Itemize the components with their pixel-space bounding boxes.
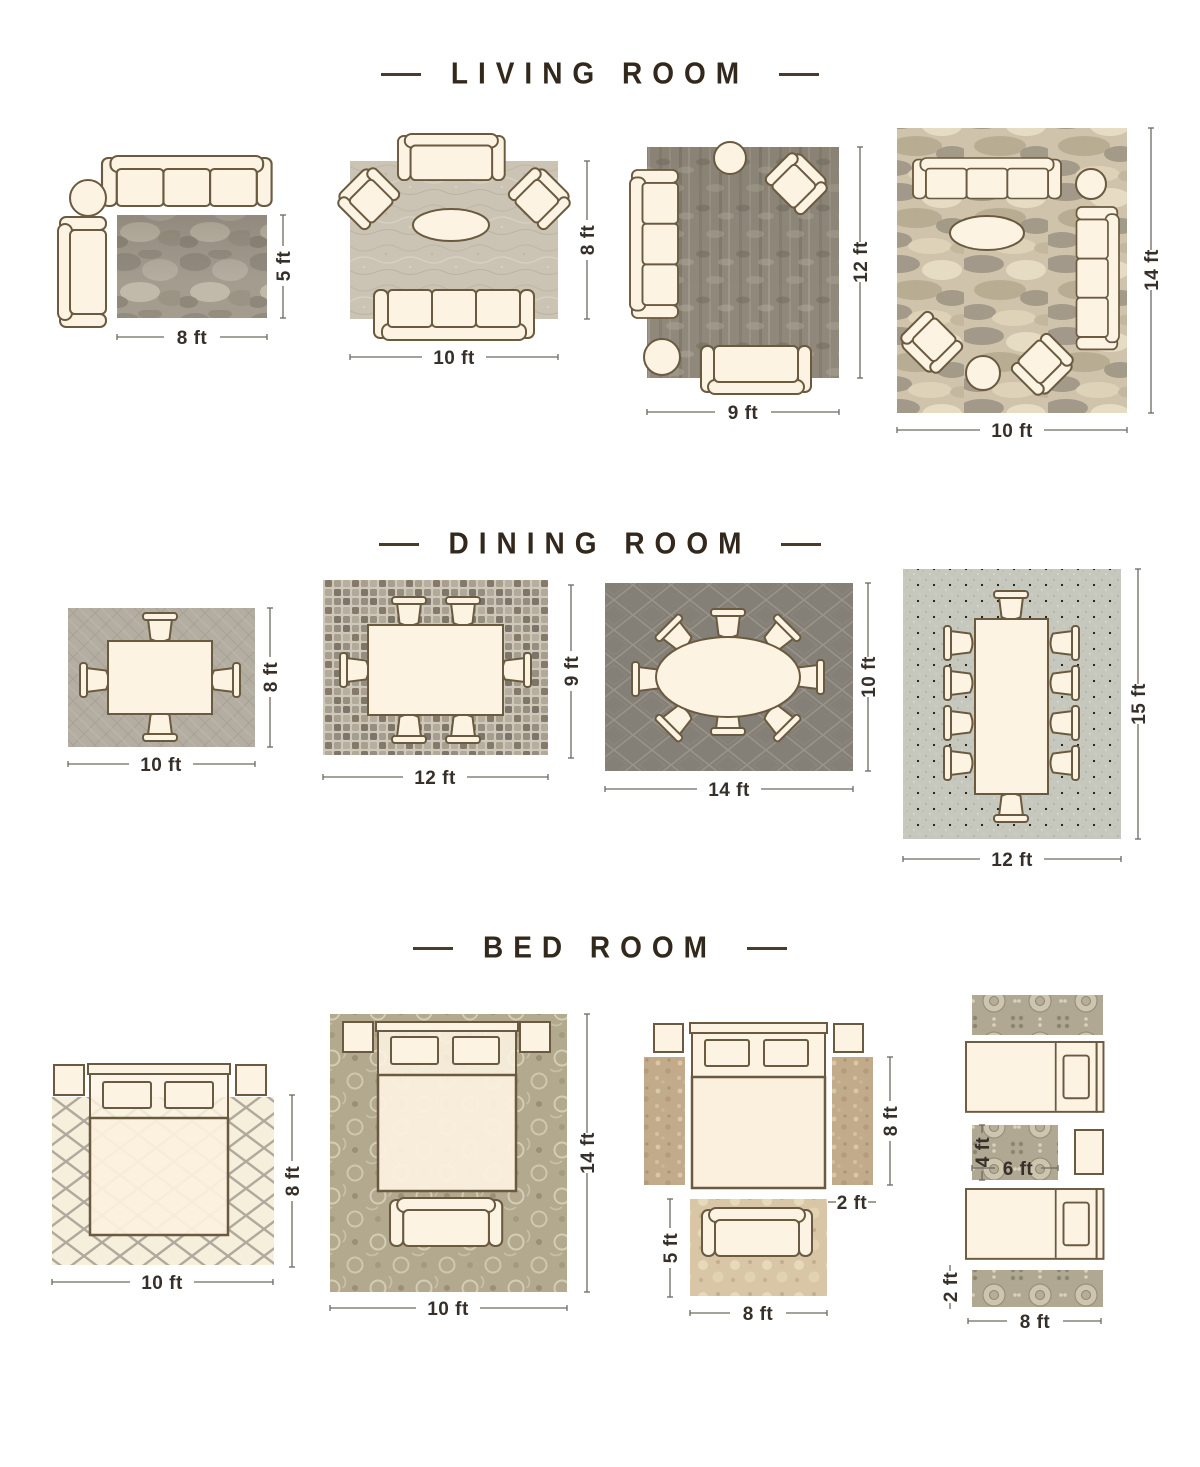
width-dimension: 12 ft	[323, 768, 548, 789]
dining-12x9-figure: 9 ft 12 ft	[315, 570, 605, 810]
pillow	[764, 1040, 808, 1066]
height-label: 5 ft	[274, 251, 295, 282]
living-layout-10x14: 14 ft 10 ft	[880, 110, 1180, 450]
living-layout-9x12: 12 ft 9 ft	[615, 130, 885, 430]
height-label: 8 ft	[578, 225, 599, 256]
height-label: 14 ft	[1142, 249, 1163, 291]
height-dimension: 5 ft	[274, 215, 295, 318]
height-dimension: 9 ft	[562, 585, 583, 758]
accent-height-label: 4 ft	[973, 1137, 994, 1168]
round-side-table	[1076, 169, 1106, 199]
sofa	[913, 158, 1061, 199]
bed-layout-10x8: 8 ft 10 ft	[30, 1040, 320, 1320]
oval-coffee-table	[950, 216, 1024, 250]
dining-room-heading: DINING ROOM	[0, 528, 1200, 560]
bed-twin-figure: 4 ft 6 ft 2 ft 8 ft	[925, 980, 1195, 1340]
height-label: 12 ft	[851, 241, 872, 283]
width-label: 12 ft	[414, 768, 456, 789]
width-dimension: 10 ft	[52, 1273, 273, 1294]
height-label: 8 ft	[261, 662, 282, 693]
living-10x8-figure: 8 ft 10 ft	[330, 120, 620, 380]
section-dining-room: DINING ROOM 8 ft 10 ft	[0, 520, 1200, 925]
dining-layout-12x9: 9 ft 12 ft	[315, 570, 605, 810]
bed-runners-figure: 8 ft 2 ft 5 ft 8 ft	[630, 1000, 910, 1330]
nightstand	[654, 1024, 683, 1052]
rug-shading	[117, 215, 267, 318]
width-label: 10 ft	[141, 1273, 183, 1294]
runner-width-dimension: 2 ft	[828, 1193, 876, 1214]
living-layout-10x8: 8 ft 10 ft	[330, 120, 620, 380]
runner-rug	[972, 995, 1103, 1035]
heading-dash	[781, 543, 821, 546]
round-side-table	[714, 142, 746, 174]
twin-bed	[966, 1042, 1103, 1112]
living-8x5-figure: 5 ft 8 ft	[40, 130, 320, 370]
width-label: 10 ft	[427, 1299, 469, 1320]
runner-rug	[972, 1270, 1103, 1307]
height-label: 14 ft	[578, 1132, 599, 1174]
height-label: 10 ft	[859, 656, 880, 698]
width-dimension: 10 ft	[897, 421, 1127, 442]
sofa	[102, 156, 272, 206]
heading-dash	[779, 73, 819, 76]
loveseat	[398, 134, 505, 180]
width-dimension: 10 ft	[350, 348, 558, 369]
pillow	[453, 1037, 499, 1064]
width-label: 12 ft	[991, 850, 1033, 871]
bed	[376, 1022, 518, 1191]
height-dimension: 10 ft	[859, 583, 880, 771]
height-dimension: 8 ft	[261, 608, 282, 747]
heading-dash	[413, 947, 453, 950]
height-label: 8 ft	[283, 1166, 304, 1197]
pillow	[391, 1037, 438, 1064]
loveseat	[701, 346, 811, 394]
round-side-table	[70, 180, 106, 216]
width-label: 8 ft	[1020, 1312, 1051, 1333]
width-dimension: 10 ft	[330, 1299, 567, 1320]
duvet	[692, 1077, 825, 1188]
height-dimension: 8 ft	[578, 161, 599, 319]
section-title: BED ROOM	[483, 931, 717, 966]
width-label: 8 ft	[177, 328, 208, 349]
pillow	[103, 1082, 151, 1108]
dining-10x8-figure: 8 ft 10 ft	[40, 580, 320, 800]
bed	[690, 1023, 827, 1188]
nightstand	[1075, 1130, 1103, 1174]
width-dimension: 10 ft	[68, 755, 255, 776]
accent-width-label: 6 ft	[1003, 1159, 1034, 1180]
round-side-table	[644, 339, 680, 375]
width-label: 14 ft	[708, 780, 750, 801]
bed-layout-twin-runners: 4 ft 6 ft 2 ft 8 ft	[925, 980, 1195, 1340]
section-living-room: LIVING ROOM 5 ft 8 ft	[0, 0, 1200, 520]
bed-layout-runners-accent: 8 ft 2 ft 5 ft 8 ft	[630, 1000, 910, 1330]
accent-height-label: 5 ft	[661, 1233, 682, 1264]
width-label: 10 ft	[433, 348, 475, 369]
living-9x12-figure: 12 ft 9 ft	[615, 130, 885, 430]
nightstand	[236, 1065, 266, 1095]
height-dimension: 15 ft	[1129, 569, 1150, 839]
section-title: LIVING ROOM	[451, 57, 749, 92]
runner-width-label: 2 ft	[837, 1193, 868, 1214]
heading-dash	[747, 947, 787, 950]
bed	[88, 1064, 230, 1235]
runner-height-dimension: 2 ft	[941, 1265, 962, 1309]
width-dimension: 12 ft	[903, 850, 1121, 871]
width-dimension: 14 ft	[605, 780, 853, 801]
height-label: 15 ft	[1129, 683, 1150, 725]
sofa	[1077, 207, 1120, 349]
width-dimension: 8 ft	[968, 1312, 1101, 1333]
bed-10x14-figure: 14 ft 10 ft	[320, 1000, 610, 1330]
twin-bed	[966, 1189, 1103, 1259]
width-label: 9 ft	[728, 403, 759, 424]
duvet	[378, 1075, 516, 1191]
runner-height-dimension: 8 ft	[881, 1057, 902, 1185]
duvet	[90, 1118, 228, 1235]
height-label: 9 ft	[562, 656, 583, 687]
width-dimension: 8 ft	[117, 328, 267, 349]
living-room-heading: LIVING ROOM	[0, 58, 1200, 90]
heading-dash	[379, 543, 419, 546]
height-dimension: 14 ft	[578, 1014, 599, 1292]
runner-rug	[644, 1057, 685, 1185]
rug-size-guide: LIVING ROOM 5 ft 8 ft	[0, 0, 1200, 1467]
height-label: 8 ft	[881, 1106, 902, 1137]
round-side-table	[966, 356, 1000, 390]
dining-layout-10x8: 8 ft 10 ft	[40, 580, 320, 800]
bench	[390, 1198, 502, 1246]
dining-layout-12x15: 15 ft 12 ft	[890, 560, 1170, 890]
bed-10x8-figure: 8 ft 10 ft	[30, 1040, 320, 1320]
loveseat	[58, 217, 106, 327]
pillow	[165, 1082, 213, 1108]
living-layout-8x5: 5 ft 8 ft	[40, 130, 320, 370]
oval-dining-table	[656, 637, 800, 717]
loveseat	[702, 1208, 812, 1256]
width-dimension: 8 ft	[690, 1304, 827, 1325]
width-label: 8 ft	[743, 1304, 774, 1325]
height-dimension: 12 ft	[851, 147, 872, 378]
heading-dash	[381, 73, 421, 76]
height-dimension: 8 ft	[283, 1095, 304, 1267]
accent-height-dimension: 5 ft	[661, 1199, 682, 1297]
dining-12x15-figure: 15 ft 12 ft	[890, 560, 1170, 890]
dining-table	[975, 619, 1048, 794]
dining-table	[368, 625, 503, 715]
dining-layout-14x10: 10 ft 14 ft	[595, 570, 895, 810]
runner-height-label: 2 ft	[941, 1272, 962, 1303]
sofa	[630, 170, 678, 318]
sofa	[374, 290, 534, 340]
height-dimension: 14 ft	[1142, 128, 1163, 413]
width-dimension: 9 ft	[647, 403, 839, 424]
width-label: 10 ft	[991, 421, 1033, 442]
nightstand	[520, 1022, 550, 1052]
runner-rug	[832, 1057, 873, 1185]
nightstand	[343, 1022, 373, 1052]
nightstand	[54, 1065, 84, 1095]
dining-table	[108, 641, 212, 714]
dining-14x10-figure: 10 ft 14 ft	[595, 570, 895, 810]
living-10x14-figure: 14 ft 10 ft	[880, 110, 1180, 450]
width-label: 10 ft	[140, 755, 182, 776]
section-title: DINING ROOM	[449, 527, 752, 562]
section-bed-room: BED ROOM 8 ft	[0, 925, 1200, 1467]
bed-room-heading: BED ROOM	[0, 932, 1200, 964]
bed-layout-10x14: 14 ft 10 ft	[320, 1000, 610, 1330]
pillow	[705, 1040, 749, 1066]
nightstand	[834, 1024, 863, 1052]
oval-coffee-table	[413, 209, 489, 241]
